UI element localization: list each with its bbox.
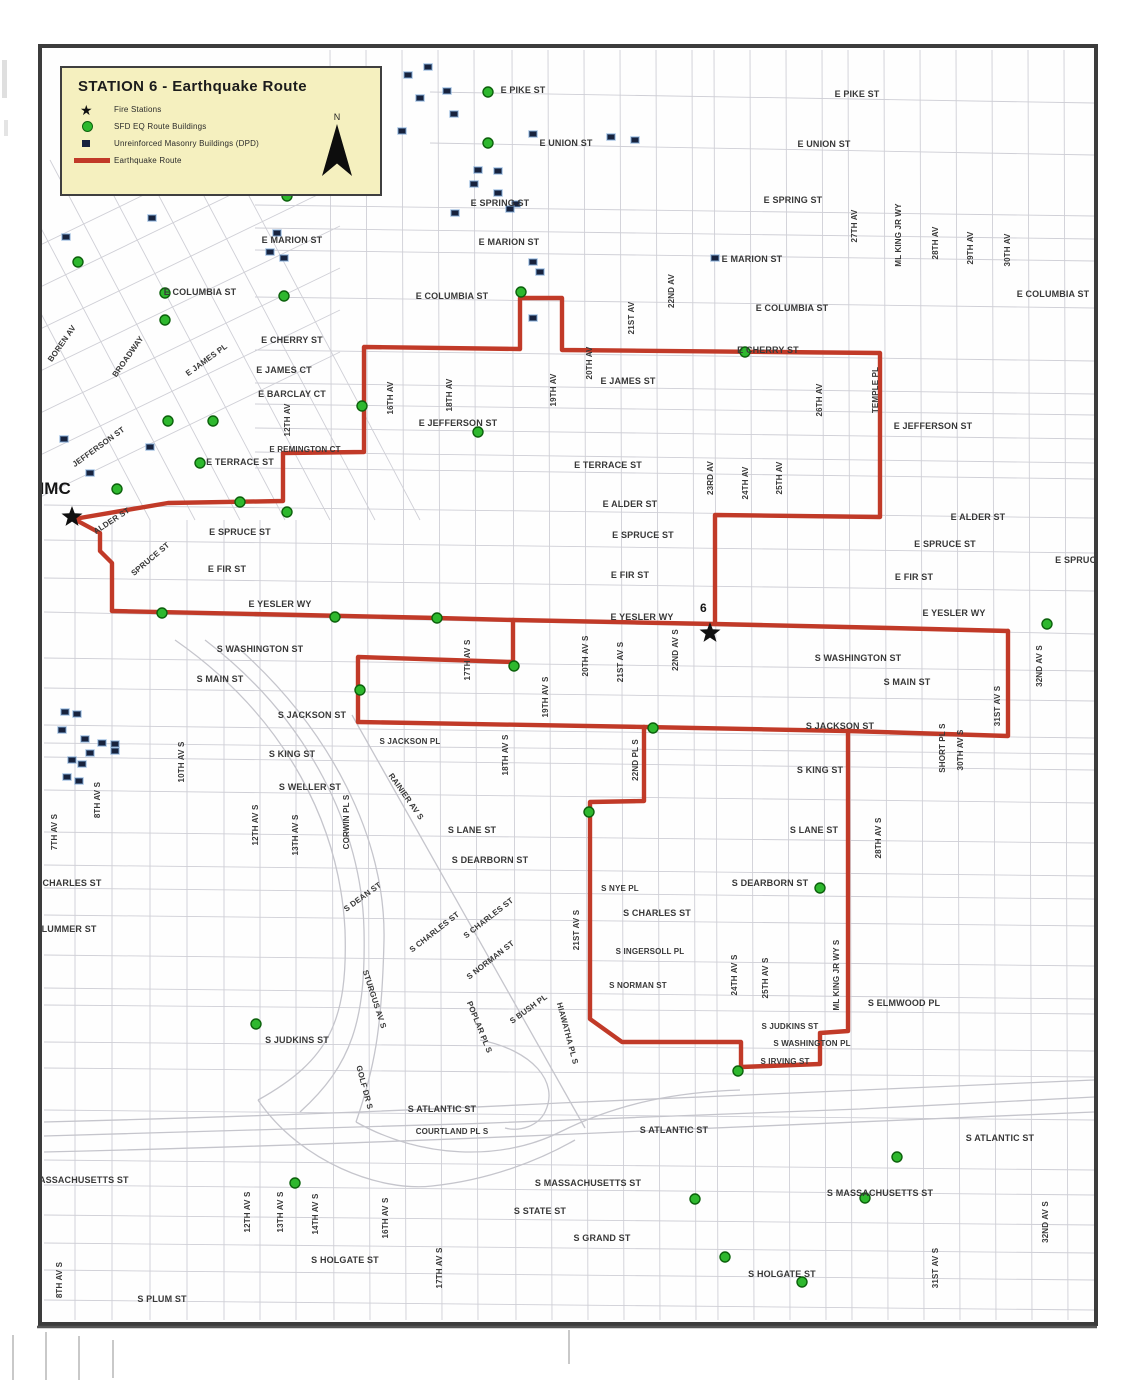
street-label: E ALDER ST xyxy=(951,512,1006,522)
eq-route-building xyxy=(112,484,122,494)
street-label: 10TH AV S xyxy=(177,741,186,782)
urm-building xyxy=(60,436,68,442)
street-label: 28TH AV S xyxy=(874,817,883,858)
street-label: 20TH AV xyxy=(585,346,594,380)
street-label: 25TH AV S xyxy=(761,957,770,998)
urm-building xyxy=(98,740,106,746)
legend-item-label: Earthquake Route xyxy=(114,156,182,165)
eq-route-building xyxy=(290,1178,300,1188)
legend-panel: STATION 6 - Earthquake Route ★ Fire Stat… xyxy=(60,66,382,196)
eq-route-building xyxy=(235,497,245,507)
eq-route-building xyxy=(279,291,289,301)
street-label: S JUDKINS ST xyxy=(265,1035,329,1045)
urm-building xyxy=(607,134,615,140)
street-label: S KING ST xyxy=(797,765,844,775)
eq-route-building xyxy=(357,401,367,411)
street-label: 23RD AV xyxy=(706,461,715,495)
street-label: MASSACHUSETTS ST xyxy=(31,1175,129,1185)
eq-route-building xyxy=(1042,619,1052,629)
street-label: CORWIN PL S xyxy=(342,794,351,849)
street-label: S WASHINGTON PL xyxy=(773,1039,850,1048)
eq-route-building xyxy=(648,723,658,733)
eq-route-building xyxy=(584,807,594,817)
street-label: S PLUM ST xyxy=(137,1294,187,1304)
street-label: 30TH AV S xyxy=(956,729,965,770)
street-label: E UNION ST xyxy=(539,138,592,148)
urm-building xyxy=(631,137,639,143)
scan-artifact xyxy=(2,60,7,98)
street-label: 18TH AV xyxy=(445,378,454,412)
urm-building xyxy=(86,750,94,756)
street-label: S IRVING ST xyxy=(760,1057,809,1066)
station-map: E PIKE STE PIKE STE UNION STE UNION STE … xyxy=(0,0,1123,1380)
street-label: E JEFFERSON ST xyxy=(894,421,973,431)
eq-route-building xyxy=(483,87,493,97)
eq-route-building xyxy=(282,507,292,517)
street-label: E FIR ST xyxy=(611,570,650,580)
street-label: S INGERSOLL PL xyxy=(616,947,685,956)
street-label: S JACKSON PL xyxy=(380,737,441,746)
urm-building xyxy=(494,168,502,174)
urm-building xyxy=(266,249,274,255)
street-label: E SPRING ST xyxy=(764,195,823,205)
urm-building-square-icon xyxy=(80,140,114,147)
street-label: 27TH AV xyxy=(850,209,859,243)
north-label: N xyxy=(320,112,354,122)
urm-building xyxy=(450,111,458,117)
street-label: 16TH AV S xyxy=(381,1197,390,1238)
street-label: E JAMES ST xyxy=(600,376,655,386)
street-label: 14TH AV S xyxy=(311,1193,320,1234)
scan-artifact xyxy=(78,1336,80,1380)
fire-station-label: HMC xyxy=(32,479,71,498)
scan-artifact xyxy=(4,120,8,136)
urm-building xyxy=(494,190,502,196)
scan-artifact xyxy=(568,1330,570,1364)
street-label: E ALDER ST xyxy=(603,499,658,509)
fire-station-label: 6 xyxy=(700,601,707,615)
urm-building xyxy=(75,778,83,784)
street-label: E UNION ST xyxy=(797,139,850,149)
urm-building xyxy=(68,757,76,763)
street-label: ML KING JR WY xyxy=(894,203,903,267)
street-label: 32ND AV S xyxy=(1041,1201,1050,1243)
street-label: S HOLGATE ST xyxy=(311,1255,379,1265)
urm-building xyxy=(711,255,719,261)
urm-building xyxy=(146,444,154,450)
eq-route-building xyxy=(157,608,167,618)
urm-building xyxy=(474,167,482,173)
urm-building xyxy=(111,748,119,754)
street-label: 17TH AV S xyxy=(435,1247,444,1288)
street-label: S ATLANTIC ST xyxy=(966,1133,1035,1143)
street-label: E MARION ST xyxy=(722,254,783,264)
urm-building xyxy=(78,761,86,767)
street-label: E SPRUCE ST xyxy=(612,530,674,540)
eq-route-building xyxy=(160,315,170,325)
street-label: 22ND AV xyxy=(667,274,676,308)
urm-building xyxy=(86,470,94,476)
map-title: STATION 6 - Earthquake Route xyxy=(62,68,380,101)
urm-building xyxy=(148,215,156,221)
legend-item-label: Unreinforced Masonry Buildings (DPD) xyxy=(114,139,259,148)
street-label: E PIKE ST xyxy=(501,85,546,95)
street-label: 24TH AV S xyxy=(730,954,739,995)
eq-route-building xyxy=(473,427,483,437)
street-label: E SPRUCE ST xyxy=(914,539,976,549)
street-label: 32ND AV S xyxy=(1035,645,1044,687)
street-label: 30TH AV xyxy=(1003,233,1012,267)
street-label: E PIKE ST xyxy=(835,89,880,99)
street-label: 26TH AV xyxy=(815,383,824,417)
street-label: S MAIN ST xyxy=(197,674,244,684)
street-label: S ATLANTIC ST xyxy=(640,1125,709,1135)
street-label: 19TH AV xyxy=(549,373,558,407)
street-label: 22ND PL S xyxy=(631,739,640,781)
street-label: S DEARBORN ST xyxy=(452,855,529,865)
urm-building xyxy=(536,269,544,275)
street-label: COURTLAND PL S xyxy=(416,1127,489,1136)
eq-route-building xyxy=(195,458,205,468)
urm-building xyxy=(63,774,71,780)
scan-artifact xyxy=(45,1332,47,1380)
street-label: E YESLER WY xyxy=(611,612,674,622)
street-label: 21ST AV S xyxy=(572,909,581,950)
street-label: S KING ST xyxy=(269,749,316,759)
street-label: 13TH AV S xyxy=(276,1191,285,1232)
street-label: 20TH AV S xyxy=(581,635,590,676)
street-label: 29TH AV xyxy=(966,231,975,265)
street-label: E TERRACE ST xyxy=(206,457,274,467)
eq-route-building xyxy=(815,883,825,893)
eq-route-building xyxy=(163,416,173,426)
street-label: E MARION ST xyxy=(479,237,540,247)
street-label: S ATLANTIC ST xyxy=(408,1104,477,1114)
street-label: S WELLER ST xyxy=(279,782,342,792)
street-label: S JACKSON ST xyxy=(278,710,347,720)
urm-building xyxy=(470,181,478,187)
street-label: E SPRUCE ST xyxy=(209,527,271,537)
urm-building xyxy=(404,72,412,78)
urm-building xyxy=(529,131,537,137)
urm-building xyxy=(443,88,451,94)
street-label: S NYE PL xyxy=(601,884,639,893)
urm-building xyxy=(58,727,66,733)
street-label: 21ST AV S xyxy=(616,641,625,682)
street-label: 13TH AV S xyxy=(291,814,300,855)
street-label: E SPRING ST xyxy=(471,198,530,208)
street-label: 31ST AV S xyxy=(993,685,1002,726)
street-label: S NORMAN ST xyxy=(609,981,667,990)
street-label: S HOLGATE ST xyxy=(748,1269,816,1279)
street-label: TEMPLE PL xyxy=(871,367,880,413)
street-label: 16TH AV xyxy=(386,381,395,415)
street-label: E COLUMBIA ST xyxy=(416,291,489,301)
street-label: S JACKSON ST xyxy=(806,721,875,731)
street-label: S LANE ST xyxy=(448,825,497,835)
street-label: S ELMWOOD PL xyxy=(868,998,941,1008)
street-label: E YESLER WY xyxy=(923,608,986,618)
eq-route-building xyxy=(330,612,340,622)
street-label: S WASHINGTON ST xyxy=(217,644,304,654)
urm-building xyxy=(529,315,537,321)
scan-artifact xyxy=(12,1335,14,1380)
eq-building-dot-icon xyxy=(80,121,114,132)
eq-route-building xyxy=(73,257,83,267)
street-label: S GRAND ST xyxy=(573,1233,630,1243)
urm-building xyxy=(73,711,81,717)
north-arrow-icon xyxy=(322,124,352,176)
route-line-icon xyxy=(80,158,114,163)
scanned-map-page: E PIKE STE PIKE STE UNION STE UNION STE … xyxy=(0,0,1123,1380)
street-label: 19TH AV S xyxy=(541,676,550,717)
street-label: 25TH AV xyxy=(775,461,784,495)
urm-building xyxy=(424,64,432,70)
urm-building xyxy=(398,128,406,134)
street-label: E MARION ST xyxy=(262,235,323,245)
street-label: S MAIN ST xyxy=(884,677,931,687)
street-label: E COLUMBIA ST xyxy=(164,287,237,297)
eq-route-building xyxy=(720,1252,730,1262)
street-label: E BARCLAY CT xyxy=(258,389,326,399)
street-label: 28TH AV xyxy=(931,226,940,260)
urm-building xyxy=(416,95,424,101)
street-label: E COLUMBIA ST xyxy=(1017,289,1090,299)
eq-route-building xyxy=(690,1194,700,1204)
street-label: E REMINGTON CT xyxy=(269,445,340,454)
urm-building xyxy=(81,736,89,742)
street-label: E JEFFERSON ST xyxy=(419,418,498,428)
scan-artifact xyxy=(112,1340,114,1378)
legend-item-label: SFD EQ Route Buildings xyxy=(114,122,206,131)
eq-route-building xyxy=(251,1019,261,1029)
urm-building xyxy=(529,259,537,265)
urm-building xyxy=(62,234,70,240)
street-label: 8TH AV S xyxy=(55,1261,64,1298)
urm-building xyxy=(111,741,119,747)
street-label: E FIR ST xyxy=(208,564,247,574)
street-label: 21ST AV xyxy=(627,301,636,334)
street-label: E YESLER WY xyxy=(249,599,312,609)
street-label: E COLUMBIA ST xyxy=(756,303,829,313)
street-label: S LANE ST xyxy=(790,825,839,835)
street-label: E SPRUCE ST xyxy=(1055,555,1117,565)
street-label: S MASSACHUSETTS ST xyxy=(535,1178,642,1188)
street-label: S WASHINGTON ST xyxy=(815,653,902,663)
street-label: 22ND AV S xyxy=(671,629,680,671)
street-label: E CHERRY ST xyxy=(261,335,323,345)
street-label: 7TH AV S xyxy=(50,813,59,850)
street-label: 12TH AV S xyxy=(243,1191,252,1232)
street-label: E FIR ST xyxy=(895,572,934,582)
eq-route-building xyxy=(733,1066,743,1076)
urm-building xyxy=(61,709,69,715)
fire-station-star-icon: ★ xyxy=(80,105,114,115)
street-label: 8TH AV S xyxy=(93,781,102,818)
street-label: E JAMES CT xyxy=(256,365,312,375)
street-label: CHARLES ST xyxy=(42,878,101,888)
street-label: 17TH AV S xyxy=(463,639,472,680)
street-label: 24TH AV xyxy=(741,466,750,500)
eq-route-building xyxy=(208,416,218,426)
street-label: S STATE ST xyxy=(514,1206,567,1216)
urm-building xyxy=(280,255,288,261)
street-label: 12TH AV xyxy=(283,403,292,437)
street-label: 18TH AV S xyxy=(501,734,510,775)
eq-route-building xyxy=(355,685,365,695)
compass-north: N xyxy=(320,112,354,176)
eq-route-building xyxy=(509,661,519,671)
street-label: PLUMMER ST xyxy=(36,924,97,934)
street-label: SHORT PL S xyxy=(938,723,947,773)
street-label: S DEARBORN ST xyxy=(732,878,809,888)
eq-route-building xyxy=(516,287,526,297)
street-label: 31ST AV S xyxy=(931,1247,940,1288)
street-label: E TERRACE ST xyxy=(574,460,642,470)
legend-item-label: Fire Stations xyxy=(114,105,162,114)
street-label: 12TH AV S xyxy=(251,804,260,845)
eq-route-building xyxy=(892,1152,902,1162)
eq-route-building xyxy=(432,613,442,623)
street-label: ML KING JR WY S xyxy=(832,939,841,1010)
street-label: S MASSACHUSETTS ST xyxy=(827,1188,934,1198)
urm-building xyxy=(451,210,459,216)
eq-route-building xyxy=(483,138,493,148)
street-label: S CHARLES ST xyxy=(623,908,691,918)
street-label: S JUDKINS ST xyxy=(762,1022,819,1031)
street-label: E CHERRY ST xyxy=(737,345,799,355)
